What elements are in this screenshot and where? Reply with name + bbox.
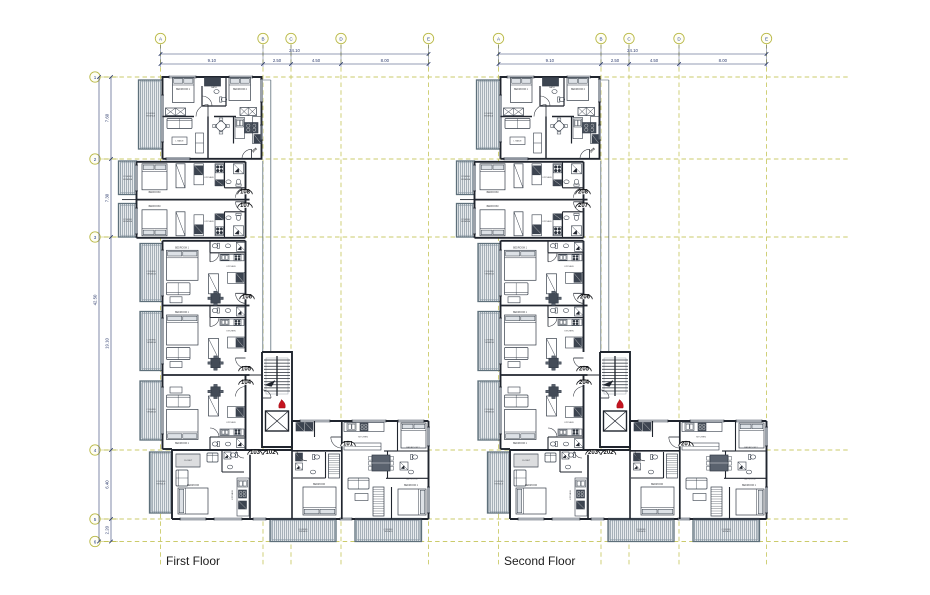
svg-text:VERANDA: VERANDA — [146, 115, 156, 118]
svg-text:4.50: 4.50 — [312, 58, 321, 63]
svg-text:BEDROOM 2: BEDROOM 2 — [744, 447, 758, 449]
svg-text:2.20: 2.20 — [105, 525, 110, 534]
svg-text:6.40: 6.40 — [105, 480, 110, 489]
svg-text:BEDROOM 1: BEDROOM 1 — [404, 485, 419, 487]
svg-text:2: 2 — [94, 157, 97, 162]
svg-text:BEDROOM 2: BEDROOM 2 — [233, 89, 248, 91]
svg-text:KITCHEN: KITCHEN — [564, 266, 574, 268]
svg-text:6: 6 — [94, 539, 97, 544]
svg-text:TERRACE: TERRACE — [636, 530, 646, 533]
svg-text:7.60: 7.60 — [105, 113, 110, 122]
svg-text:VERANDA: VERANDA — [147, 341, 157, 344]
svg-text:9.10: 9.10 — [546, 58, 555, 63]
svg-text:207: 207 — [578, 203, 589, 209]
svg-text:KITCHEN: KITCHEN — [358, 437, 368, 439]
svg-text:BEDROOM 1: BEDROOM 1 — [513, 312, 528, 314]
svg-text:105: 105 — [241, 367, 252, 373]
svg-text:VERANDA: VERANDA — [461, 178, 471, 181]
svg-text:VERANDA: VERANDA — [123, 178, 133, 181]
svg-text:KITCHEN: KITCHEN — [226, 422, 236, 424]
svg-text:TERRACE: TERRACE — [298, 530, 308, 533]
svg-text:VERANDA: VERANDA — [485, 411, 495, 414]
svg-text:KITCHEN: KITCHEN — [226, 266, 236, 268]
svg-text:KITCHEN: KITCHEN — [232, 490, 234, 500]
svg-text:BEDROOM: BEDROOM — [149, 206, 161, 208]
svg-text:KITCHEN: KITCHEN — [564, 331, 574, 333]
svg-text:BATH: BATH — [549, 86, 555, 89]
svg-text:TERRACE: TERRACE — [494, 483, 504, 486]
svg-text:BEDROOM: BEDROOM — [525, 485, 537, 487]
svg-text:VERANDA: VERANDA — [147, 273, 157, 276]
svg-text:VERANDA: VERANDA — [123, 220, 133, 223]
svg-text:206: 206 — [580, 295, 591, 301]
svg-text:BEDROOM 2: BEDROOM 2 — [406, 447, 420, 449]
svg-text:CLOSET: CLOSET — [522, 460, 531, 462]
svg-text:KITCHEN: KITCHEN — [204, 221, 214, 223]
svg-text:4.50: 4.50 — [650, 58, 659, 63]
svg-text:203: 203 — [588, 450, 599, 456]
svg-text:KITCHEN: KITCHEN — [226, 331, 236, 333]
svg-text:108: 108 — [240, 190, 251, 196]
svg-text:Second Floor: Second Floor — [504, 554, 575, 568]
svg-text:BEDROOM: BEDROOM — [313, 484, 325, 486]
svg-text:BEDROOM: BEDROOM — [149, 192, 161, 194]
svg-text:BEDROOM 1: BEDROOM 1 — [175, 443, 190, 445]
svg-text:204: 204 — [579, 380, 590, 386]
svg-text:BEDROOM 1: BEDROOM 1 — [514, 89, 529, 91]
svg-text:BEDROOM 1: BEDROOM 1 — [175, 312, 190, 314]
svg-text:7.30: 7.30 — [105, 193, 110, 202]
svg-text:VERANDA: VERANDA — [485, 273, 495, 276]
svg-text:E: E — [427, 36, 430, 41]
svg-text:BEDROOM: BEDROOM — [487, 206, 499, 208]
svg-text:101: 101 — [343, 442, 354, 448]
svg-text:TERRACE: TERRACE — [384, 530, 394, 533]
svg-text:B: B — [599, 36, 602, 41]
svg-text:201: 201 — [681, 442, 692, 448]
svg-text:KITCHEN: KITCHEN — [204, 177, 214, 179]
svg-text:VERANDA: VERANDA — [485, 341, 495, 344]
svg-text:205: 205 — [579, 367, 590, 373]
svg-text:BEDROOM: BEDROOM — [487, 192, 499, 194]
svg-text:L TABLE: L TABLE — [513, 140, 522, 143]
svg-text:3: 3 — [94, 235, 97, 240]
svg-text:BEDROOM 1: BEDROOM 1 — [742, 485, 757, 487]
svg-text:104: 104 — [241, 380, 252, 386]
svg-text:42.50: 42.50 — [93, 294, 98, 305]
svg-text:KITCHEN: KITCHEN — [542, 177, 552, 179]
svg-text:BATHROOM: BATHROOM — [744, 478, 756, 481]
svg-text:102: 102 — [265, 450, 276, 456]
svg-text:1: 1 — [94, 75, 97, 80]
svg-text:VERANDA: VERANDA — [484, 115, 494, 118]
svg-text:BATH: BATH — [211, 86, 217, 89]
svg-text:L TABLE: L TABLE — [175, 140, 184, 143]
svg-text:2.50: 2.50 — [611, 58, 620, 63]
svg-text:BATHROOM: BATHROOM — [406, 478, 418, 481]
svg-text:VERANDA: VERANDA — [147, 411, 157, 414]
svg-text:8.00: 8.00 — [381, 58, 390, 63]
svg-text:KITCHEN: KITCHEN — [570, 490, 572, 500]
svg-text:5: 5 — [94, 517, 97, 522]
svg-text:VERANDA: VERANDA — [461, 220, 471, 223]
svg-text:4: 4 — [94, 448, 97, 453]
svg-text:BEDROOM 1: BEDROOM 1 — [176, 89, 191, 91]
svg-text:KITCHEN: KITCHEN — [542, 221, 552, 223]
svg-text:TERRACE: TERRACE — [156, 483, 166, 486]
svg-text:208: 208 — [578, 190, 589, 196]
svg-text:TERRACE: TERRACE — [722, 530, 732, 533]
svg-text:KITCHEN: KITCHEN — [696, 437, 706, 439]
svg-text:CLOSET: CLOSET — [184, 460, 193, 462]
svg-text:E: E — [765, 36, 768, 41]
svg-text:202: 202 — [603, 450, 614, 456]
svg-text:B: B — [261, 36, 264, 41]
svg-text:First Floor: First Floor — [166, 554, 220, 568]
svg-text:107: 107 — [240, 203, 251, 209]
svg-text:BEDROOM 1: BEDROOM 1 — [175, 247, 190, 249]
svg-text:106: 106 — [242, 295, 253, 301]
svg-text:BEDROOM 1: BEDROOM 1 — [513, 443, 528, 445]
svg-text:KITCHEN: KITCHEN — [564, 422, 574, 424]
svg-text:BEDROOM 1: BEDROOM 1 — [513, 247, 528, 249]
svg-text:8.00: 8.00 — [719, 58, 728, 63]
svg-text:BEDROOM: BEDROOM — [651, 484, 663, 486]
svg-text:103: 103 — [250, 450, 261, 456]
svg-text:2.50: 2.50 — [273, 58, 282, 63]
svg-text:BEDROOM: BEDROOM — [187, 485, 199, 487]
svg-text:9.10: 9.10 — [208, 58, 217, 63]
svg-text:BEDROOM 2: BEDROOM 2 — [571, 89, 586, 91]
svg-text:19.10: 19.10 — [105, 338, 110, 349]
